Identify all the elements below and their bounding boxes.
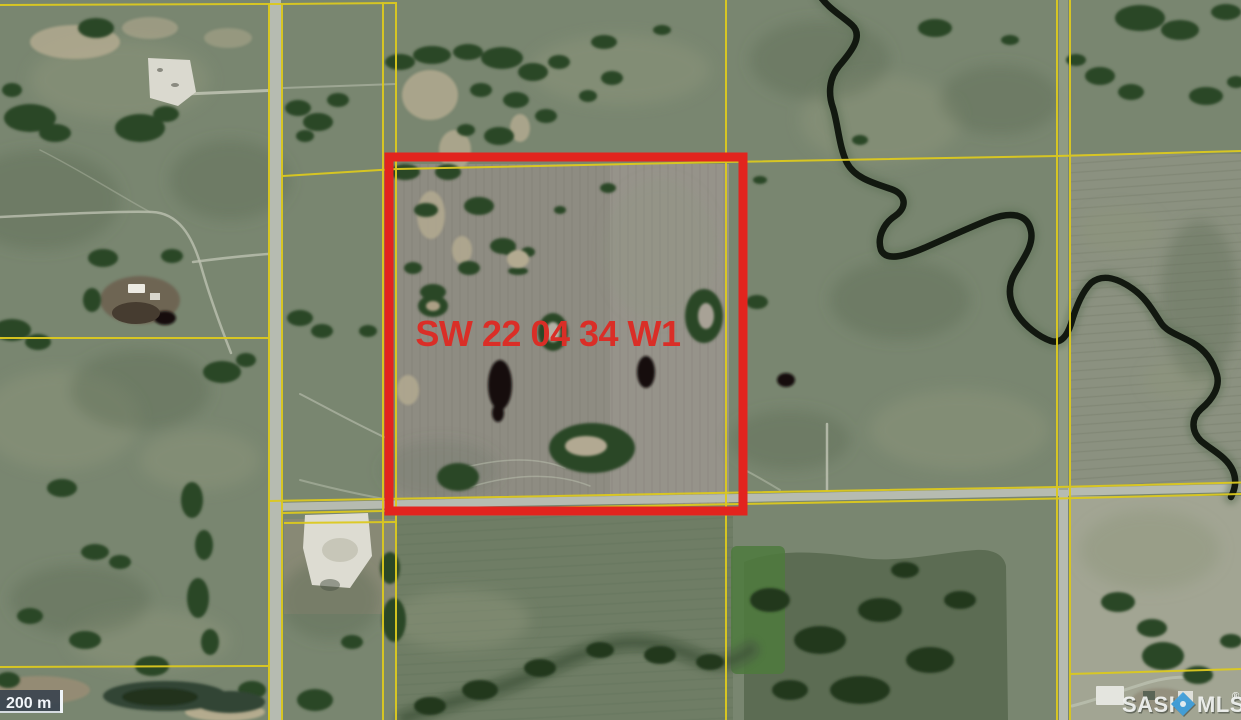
- scale-bar-distance: 200 m: [6, 695, 51, 712]
- satellite-map-view: SW 22 04 34 W1 200 m SASK MLS ® SASK MLS…: [0, 0, 1241, 720]
- scale-bar-end-tick: [60, 690, 63, 713]
- satellite-map-image: SW 22 04 34 W1 200 m SASK MLS ® SASK MLS…: [0, 0, 1241, 720]
- parcel-label: SW 22 04 34 W1: [415, 313, 681, 354]
- sask-mls-watermark: SASK MLS ® SASK MLS ®: [1122, 691, 1241, 719]
- mls-diamond-dot: [1180, 701, 1186, 707]
- watermark-registered: ®: [1232, 691, 1240, 702]
- scale-bar: 200 m: [0, 690, 63, 713]
